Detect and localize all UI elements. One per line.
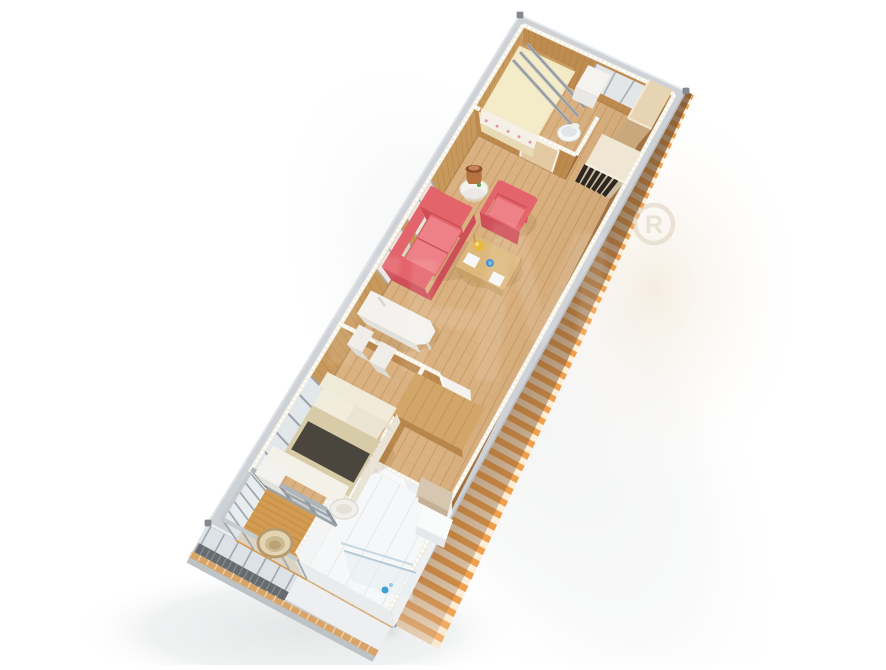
svg-text:M: M	[466, 187, 622, 384]
svg-text:R: R	[645, 211, 663, 239]
